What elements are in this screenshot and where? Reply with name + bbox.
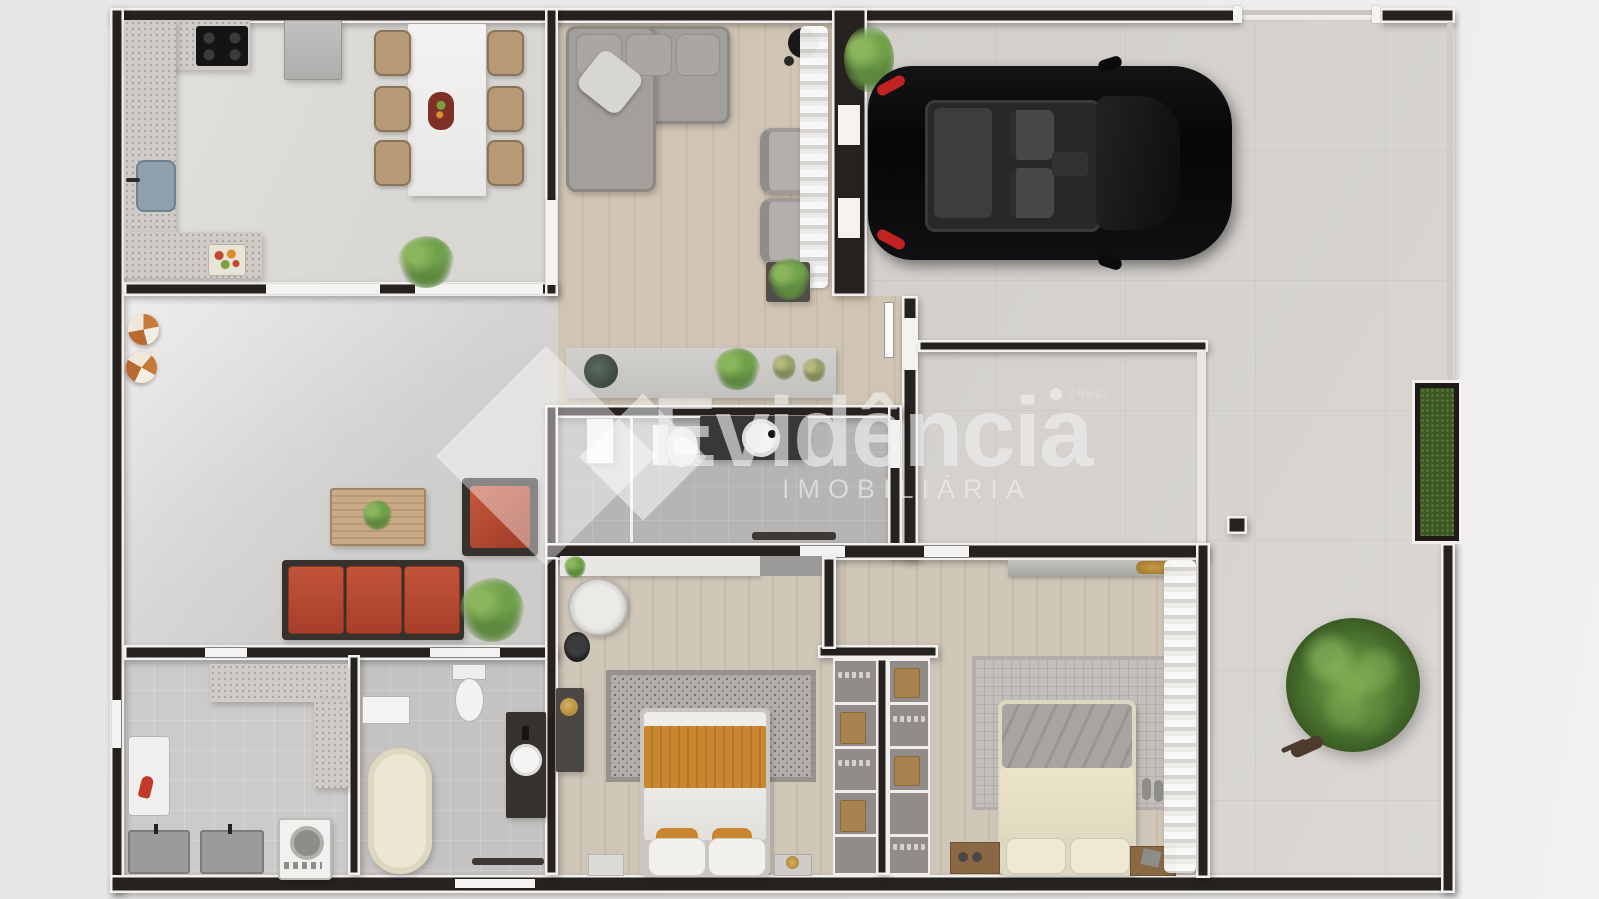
bedroom2-door <box>924 546 969 557</box>
red-sofa-cushion <box>404 566 460 634</box>
washer-door <box>290 826 324 860</box>
folded-clothes <box>840 712 866 744</box>
bed2-pillow <box>1070 838 1130 874</box>
bedroom1-shelf-gray <box>760 556 822 576</box>
kitchen-sink <box>136 160 176 212</box>
bed2-blanket-gray <box>1002 704 1132 768</box>
shelf-plant <box>564 556 586 578</box>
slippers <box>1142 778 1151 800</box>
bedroom1-shelf <box>560 556 760 576</box>
nightstand-mugs <box>958 852 968 862</box>
cooktop <box>196 26 248 66</box>
towel-bar-2 <box>472 858 544 865</box>
outer-wall-top <box>110 8 1240 23</box>
round-basin <box>742 419 780 457</box>
outer-wall-left <box>110 8 124 893</box>
folded-clothes <box>840 800 866 832</box>
planter-grass <box>1420 388 1454 536</box>
hanging-clothes <box>838 760 872 766</box>
red-sofa-cushion <box>346 566 402 634</box>
bed1-pillow <box>708 838 766 876</box>
kitchen-faucet <box>126 178 140 182</box>
desk-fan <box>564 632 590 662</box>
hall-garage-door-opening <box>902 318 918 370</box>
central-bath-west-wall <box>545 405 558 557</box>
kitchen-plant <box>398 236 454 288</box>
toilet2-bowl <box>455 678 484 722</box>
tank-faucet <box>228 824 232 834</box>
laundry-tank <box>200 830 264 874</box>
living-room-curtain <box>800 26 828 288</box>
bathtub <box>368 748 432 874</box>
console-plant <box>714 348 760 390</box>
hanging-clothes <box>893 716 925 722</box>
laundry-bath-wall <box>348 655 360 875</box>
kitchen-living-door <box>546 200 557 285</box>
fruit-tray <box>208 244 246 276</box>
bed1-blanket-orange <box>644 726 766 788</box>
central-bath-door <box>890 420 900 468</box>
car-windshield <box>1096 96 1180 230</box>
patio-low-wall <box>1197 352 1206 543</box>
living-plant <box>768 258 810 300</box>
gold-bowl <box>560 698 578 716</box>
folded-clothes <box>894 756 920 786</box>
console-plant-small <box>772 354 796 380</box>
bedroom2-east-wall <box>1196 543 1210 878</box>
outer-wall-right-bottom <box>1441 543 1455 893</box>
towel-bar <box>752 532 836 540</box>
washer-panel <box>284 862 322 869</box>
bathtub-bath-door <box>430 648 500 657</box>
bed1-pillow <box>648 838 706 876</box>
dining-chair <box>487 86 524 132</box>
laundry-door <box>205 648 247 657</box>
nightstand <box>588 854 624 876</box>
shower-door-marker <box>362 696 410 724</box>
closet-north-wall <box>818 645 938 658</box>
shower-column <box>586 418 614 464</box>
laundry-tank <box>128 830 190 874</box>
patio-pillar <box>1227 516 1247 534</box>
bedroom1-east-wall <box>822 557 836 649</box>
car-console <box>1052 152 1088 176</box>
laundry-counter-side <box>314 700 348 788</box>
console-bowl <box>584 354 618 388</box>
garage-patio-divider-wall <box>918 340 1208 352</box>
car <box>868 66 1232 260</box>
hall-garage-door-leaf <box>884 302 894 358</box>
console-plant-small <box>802 358 826 382</box>
outer-wall-top-right <box>1380 8 1455 23</box>
table-centerpiece <box>428 92 454 130</box>
living-window-2 <box>838 198 860 238</box>
laundry-window <box>112 700 121 748</box>
floor-plan-render: Evidência IMOBILIÁRIA CRECI <box>0 0 1599 899</box>
hanging-clothes <box>893 844 925 850</box>
red-sofa-cushion <box>288 566 344 634</box>
bath2-basin <box>510 744 542 776</box>
bath-window <box>455 879 535 888</box>
coffee-table-plant <box>362 500 392 530</box>
gate-post-right <box>1372 6 1380 23</box>
tank-faucet <box>154 824 158 834</box>
planter-box <box>1412 380 1462 544</box>
bed2-duvet <box>1000 768 1134 838</box>
car-front-seat <box>1010 168 1054 218</box>
wardrobe-1 <box>833 658 878 875</box>
basin-faucet <box>768 430 776 438</box>
bed2-pillow <box>1006 838 1066 874</box>
living-window-1 <box>838 105 860 145</box>
car-front-seat <box>1010 110 1054 160</box>
dining-chair <box>374 86 411 132</box>
sofa-cushion <box>676 34 720 76</box>
bedroom2-curtain <box>1164 560 1196 873</box>
family-room-plant <box>460 578 524 642</box>
nightstand-cube <box>1141 848 1162 867</box>
dining-chair <box>487 140 524 186</box>
decor-sphere <box>128 314 159 345</box>
car-rear-bench <box>934 108 992 218</box>
toilet-bowl <box>665 426 699 468</box>
kitchen-opening-1 <box>266 284 380 294</box>
shower-glass <box>630 418 633 542</box>
dining-chair <box>487 30 524 76</box>
refrigerator <box>284 20 342 80</box>
gate-post-left <box>1233 6 1242 23</box>
red-armchair <box>470 486 530 548</box>
desk-chair <box>568 578 628 636</box>
bath2-faucet <box>522 726 529 740</box>
garage-gate-opening <box>1240 10 1380 15</box>
hanging-clothes <box>838 672 872 678</box>
round-tree <box>1286 618 1420 752</box>
laundry-counter-top <box>210 664 348 702</box>
nightstand-decor-gold <box>786 856 799 869</box>
folded-clothes <box>894 668 920 698</box>
dining-chair <box>374 30 411 76</box>
dining-chair <box>374 140 411 186</box>
